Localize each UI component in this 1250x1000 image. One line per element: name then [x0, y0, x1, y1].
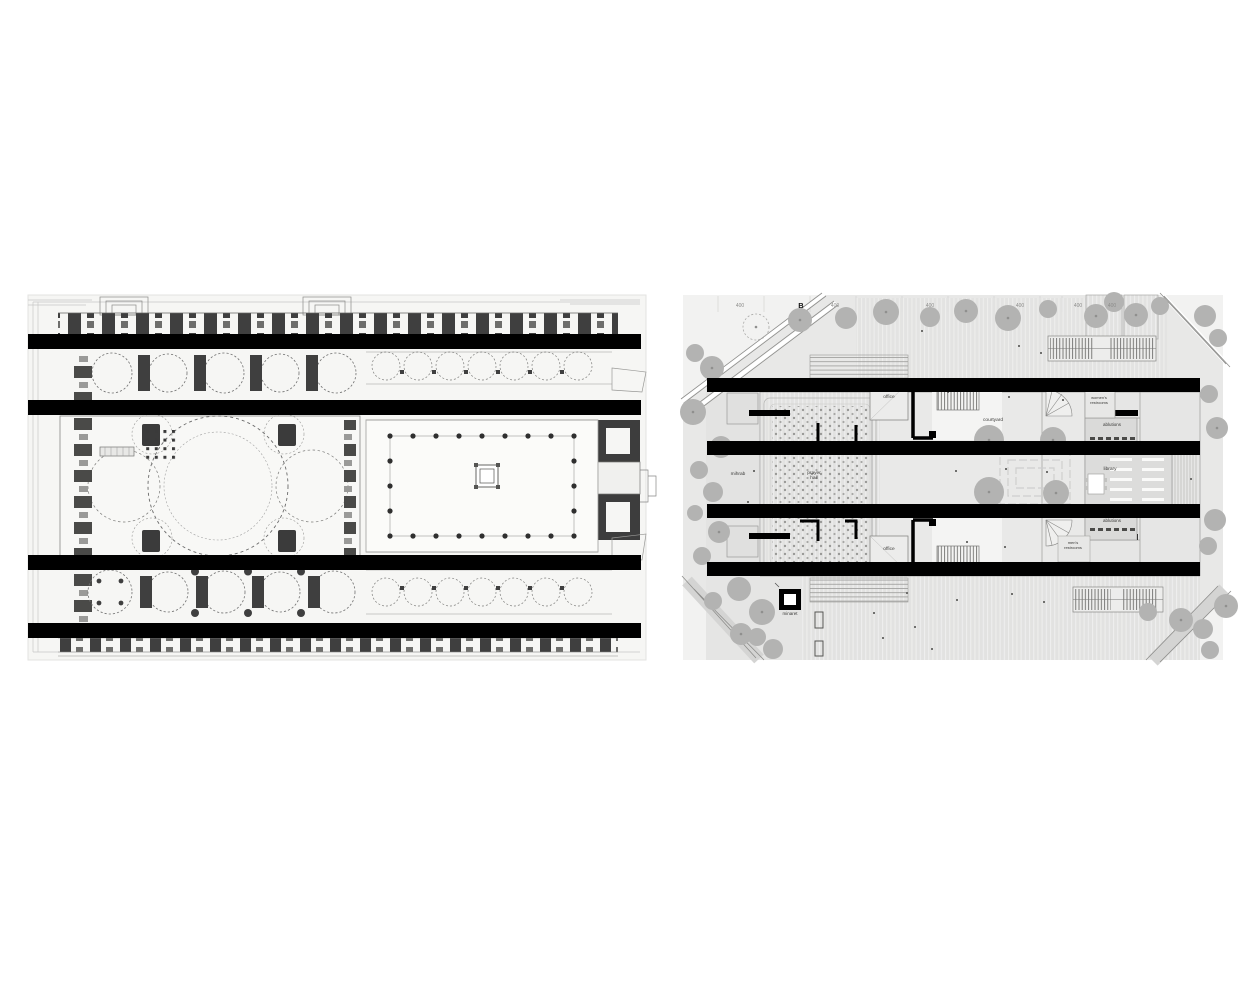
north-gallery [58, 313, 618, 335]
label-mens-restrooms: men'srestrooms [1056, 541, 1090, 550]
minbar [100, 447, 134, 456]
label-office-top: office [872, 395, 906, 400]
label-minaret: minaret [779, 612, 801, 617]
dimension-label: 400 [728, 304, 752, 309]
label-office-bottom: office [872, 547, 906, 552]
dimension-label: 400 [1066, 304, 1090, 309]
right-plan [680, 292, 1238, 662]
redaction-bar [28, 623, 641, 638]
fountain [474, 463, 500, 489]
plans-drawing [0, 0, 1250, 1000]
label-library: library [1093, 467, 1127, 472]
library-table [1088, 474, 1104, 494]
redaction-bar [707, 378, 1200, 392]
redaction-bar [707, 504, 1200, 518]
label-womens-restrooms: women'srestrooms [1082, 396, 1116, 405]
label-courtyard: courtyard [975, 418, 1011, 423]
library-room [1085, 452, 1172, 508]
left-plan [28, 295, 656, 660]
exterior-stair-northeast [1048, 336, 1156, 361]
dimension-label: 400 [918, 304, 942, 309]
label-ablutions-top: ablutions [1094, 423, 1130, 428]
prayer-hall-carpet [764, 398, 876, 570]
west-wall-piers [70, 352, 92, 622]
east-wall-piers [344, 420, 360, 556]
dimension-label: 400 [823, 304, 847, 309]
dimension-label: 400 [1008, 304, 1032, 309]
courtyard-left-plan [366, 420, 598, 552]
redaction-bar [28, 334, 641, 349]
redaction-bar [28, 555, 641, 570]
label-mihrab: mihrab [722, 472, 754, 477]
label-prayer-hall: prayerhall [799, 471, 829, 481]
dimension-label: 400 [1100, 304, 1124, 309]
section-marker-b: B [795, 302, 807, 310]
redaction-bar [28, 400, 641, 415]
label-ablutions-bottom: ablutions [1094, 519, 1130, 524]
redaction-bar [707, 441, 1200, 455]
comparison-canvas: 400 400 400 400 400 400 B office women's… [0, 0, 1250, 1000]
column-grid [143, 430, 177, 464]
redaction-bar [707, 562, 1200, 576]
